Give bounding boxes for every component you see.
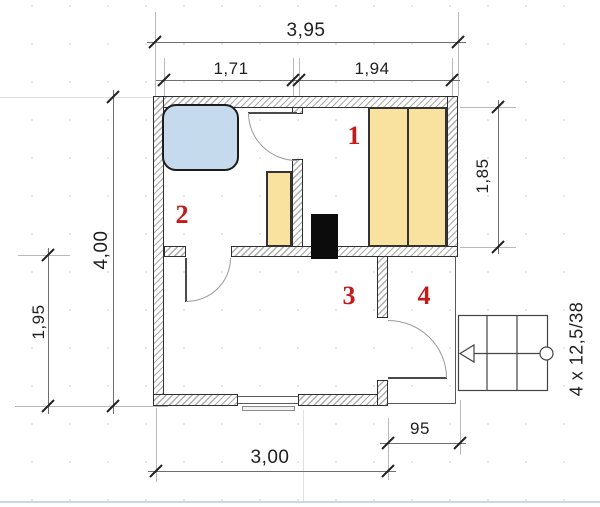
extension-line — [155, 12, 156, 96]
dim-line-top-rooms — [156, 80, 460, 81]
construction-line — [303, 410, 304, 502]
stairs-start-circle — [540, 347, 553, 360]
window-sill — [242, 406, 295, 411]
sauna-bench-divider — [407, 108, 409, 246]
door-arc-room2-room1 — [248, 113, 297, 161]
dim-line-room1-height — [498, 100, 499, 254]
door-arc-room3-room4 — [388, 320, 447, 378]
dim-label-room1-height: 1,85 — [473, 158, 493, 193]
dim-label-room3-height: 1,95 — [29, 304, 49, 339]
room-label-2: 2 — [176, 200, 189, 230]
room-label-4: 4 — [418, 281, 431, 311]
wall-bottom-left — [153, 394, 238, 406]
construction-line — [0, 97, 153, 98]
interior-wall-horizontal-left-stub — [164, 246, 186, 257]
room-label-1: 1 — [348, 121, 361, 151]
window-outer-line — [238, 396, 298, 397]
wall-right-upper — [447, 96, 458, 256]
interior-wall-room3-room4-upper — [377, 256, 388, 318]
dim-line-overall-height — [113, 90, 114, 414]
extension-line — [460, 107, 516, 108]
extension-line — [460, 400, 461, 455]
dim-label-room1-width: 1,94 — [354, 59, 389, 79]
stairs-label: 4 x 12,5/38 — [567, 302, 588, 397]
interior-wall-horizontal — [231, 246, 458, 257]
interior-wall-room1-room2 — [292, 159, 303, 247]
drawing-baseline — [0, 501, 600, 503]
dim-line-overall-width — [147, 42, 466, 43]
interior-wall-room3-room4-lower — [377, 380, 388, 406]
dim-label-room2-width: 1,71 — [213, 59, 248, 79]
changing-bench — [266, 171, 292, 247]
floor-plan-canvas: 3,95 1,71 1,94 4,00 1,95 1,85 3,00 95 4 … — [0, 0, 600, 507]
dim-label-overall-width: 3,95 — [287, 20, 326, 42]
extension-line — [458, 12, 459, 96]
door-arc-room2-room3 — [186, 258, 231, 302]
extension-line — [15, 406, 168, 407]
sauna-stove — [311, 214, 338, 259]
room-label-3: 3 — [343, 281, 356, 311]
dim-label-bottom-width: 3,00 — [251, 447, 290, 469]
dim-line-bottom-width — [148, 471, 396, 472]
dim-label-porch-width: 95 — [410, 419, 430, 439]
wall-bottom-mid — [298, 394, 378, 406]
dim-label-overall-height: 4,00 — [91, 231, 113, 270]
bathtub — [162, 104, 239, 171]
window-inner-line — [238, 403, 298, 404]
porch-wall-bottom — [388, 403, 456, 404]
dim-line-porch-width — [380, 443, 466, 444]
extension-line — [460, 247, 516, 248]
